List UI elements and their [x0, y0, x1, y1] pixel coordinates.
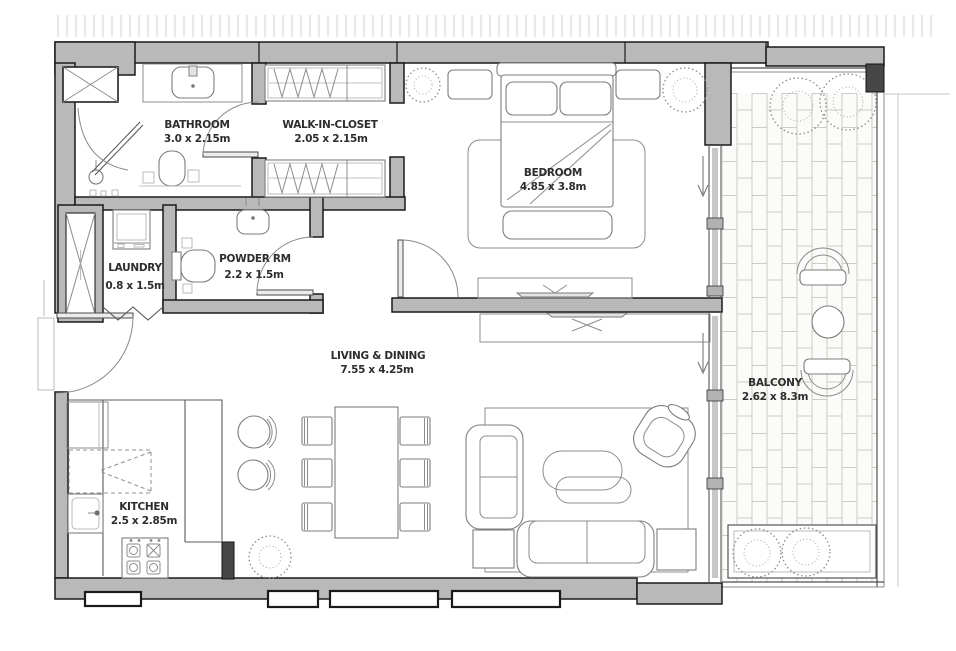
kitchen-pier	[222, 542, 234, 579]
balcony-label: BALCONY	[748, 377, 802, 389]
nightstand-right	[616, 70, 660, 99]
balcony-dims: 2.62 x 8.3m	[742, 391, 809, 403]
balcony-table	[812, 306, 844, 338]
washing-machine	[113, 210, 150, 249]
bed-pillow-right	[560, 82, 611, 115]
living-dining-label: LIVING & DINING	[331, 350, 426, 362]
dining-chair	[400, 417, 430, 445]
laundry-dims: 0.8 x 1.5m	[105, 280, 165, 292]
powder-east-wall-upper	[310, 197, 323, 237]
left-wall-lower	[55, 392, 68, 578]
balcony-area	[722, 68, 950, 587]
lower-window	[330, 591, 438, 607]
kitchen-cabinet	[67, 402, 108, 448]
floor-plan-canvas: BATHROOM 3.0 x 2.15m WALK-IN-CLOSET 2.05…	[0, 0, 956, 651]
closet-label: WALK-IN-CLOSET	[282, 119, 378, 131]
dining-chair	[302, 459, 332, 487]
side-table-left	[473, 530, 514, 568]
closet-entry-plant	[406, 68, 440, 102]
living-dining-furniture	[302, 394, 705, 577]
balcony-planter	[728, 525, 876, 578]
kitchen-plant	[249, 536, 291, 578]
kitchen-sink	[68, 494, 103, 533]
top-wall	[55, 42, 768, 63]
wardrobe-top	[265, 65, 385, 101]
stove	[122, 538, 168, 578]
bathroom-shower	[78, 108, 143, 196]
closet-dims: 2.05 x 2.15m	[294, 133, 368, 145]
living-tv-console	[480, 313, 710, 342]
closet-bedroom-wall-lower	[390, 157, 404, 198]
shaft-left-tall	[58, 205, 103, 322]
dining-chair	[302, 417, 332, 445]
slide-arrow-living	[698, 333, 708, 373]
floor-plan-drawing: BATHROOM 3.0 x 2.15m WALK-IN-CLOSET 2.05…	[0, 0, 956, 651]
powder-toilet	[172, 250, 215, 282]
bed-pillow-left	[506, 82, 557, 115]
bedroom-plant	[663, 68, 707, 112]
bar-stool-1	[238, 416, 276, 448]
balcony-left-pier	[705, 63, 731, 145]
lower-window	[85, 592, 141, 606]
balcony-corner-pier	[866, 64, 884, 92]
nightstand-left	[448, 70, 492, 99]
laundry-label: LAUNDRY	[108, 262, 162, 274]
bar-stool-2	[238, 460, 275, 490]
powder-dims: 2.2 x 1.5m	[224, 269, 284, 281]
top-wall-balcony	[766, 47, 884, 66]
dining-table	[335, 407, 398, 538]
bathroom-dims: 3.0 x 2.15m	[164, 133, 231, 145]
closet-fixtures	[265, 65, 385, 197]
bedroom-tv-console	[478, 278, 632, 298]
shaft-top-left	[63, 67, 118, 102]
kitchen-fixtures	[67, 400, 291, 578]
bedroom-furniture	[406, 63, 707, 248]
armchair	[627, 394, 705, 474]
living-dining-dims: 7.55 x 4.25m	[340, 364, 414, 376]
lower-window	[268, 591, 318, 607]
powder-sink	[237, 210, 269, 234]
bottom-wall-step	[637, 583, 722, 604]
wardrobe-bottom	[265, 160, 385, 197]
balcony-tile-floor	[722, 93, 877, 582]
closet-bedroom-wall-upper	[390, 63, 404, 103]
loveseat	[466, 425, 523, 529]
bed-bench	[503, 211, 612, 239]
dining-chair	[400, 459, 430, 487]
laundry-fixtures	[113, 210, 150, 249]
bedroom-living-wall	[392, 298, 722, 312]
bathroom-block-south-wall	[75, 197, 405, 210]
lower-window	[452, 591, 560, 607]
side-table-right	[657, 529, 696, 570]
bedroom-label: BEDROOM	[524, 167, 582, 179]
slide-arrow-bedroom	[698, 156, 708, 196]
dining-chair	[302, 503, 332, 531]
bathroom-label: BATHROOM	[164, 119, 229, 131]
bathroom-closet-wall-lower	[252, 158, 266, 198]
coffee-table	[543, 451, 631, 503]
powder-door	[257, 237, 313, 295]
bathroom-closet-wall-upper	[252, 63, 266, 104]
powder-floor-drain	[183, 284, 192, 293]
powder-tp-holder	[182, 238, 192, 248]
bedroom-dims: 4.85 x 3.8m	[520, 181, 587, 193]
bed-headboard	[497, 63, 616, 76]
bedroom-door	[398, 240, 458, 297]
glazing-living	[707, 312, 723, 583]
powder-south-wall	[163, 300, 323, 313]
powder-label: POWDER RM	[219, 253, 291, 265]
dining-chair	[400, 503, 430, 531]
balcony-glass-wall	[698, 145, 723, 583]
dining-set	[302, 407, 430, 538]
kitchen-label: KITCHEN	[119, 501, 169, 513]
context-hatch-band	[55, 12, 935, 40]
bathroom-faucet	[189, 66, 197, 76]
glazing-bedroom	[707, 145, 723, 298]
sofa	[517, 521, 654, 577]
kitchen-dims: 2.5 x 2.85m	[111, 515, 178, 527]
refrigerator	[69, 450, 151, 493]
